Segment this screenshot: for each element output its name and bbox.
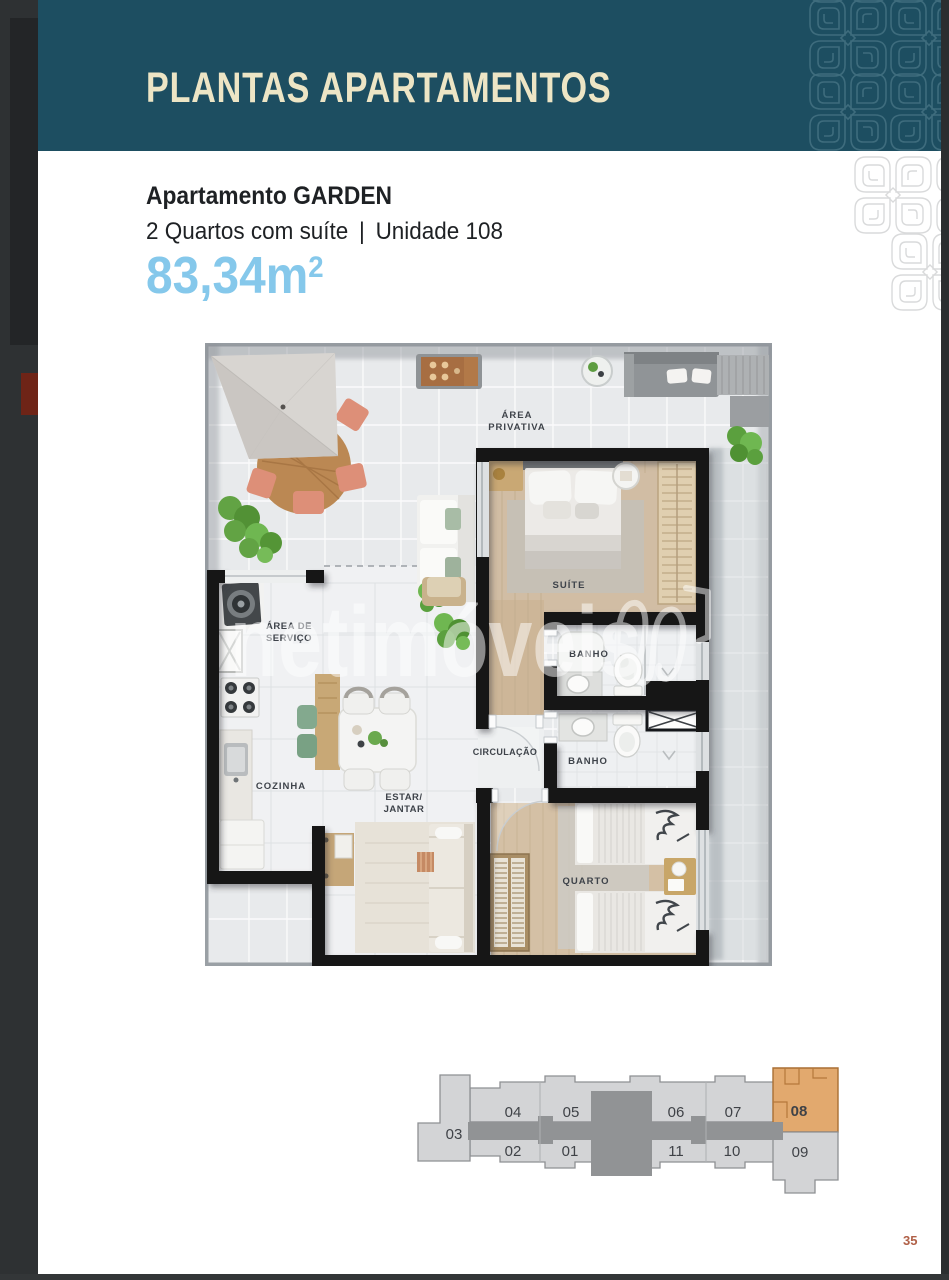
svg-text:07: 07 — [725, 1104, 742, 1121]
svg-text:09: 09 — [792, 1144, 809, 1161]
svg-text:ESTAR/: ESTAR/ — [385, 792, 422, 803]
svg-text:ÁREA: ÁREA — [502, 410, 533, 421]
svg-text:06: 06 — [668, 1104, 685, 1121]
svg-text:QUARTO: QUARTO — [563, 876, 610, 887]
svg-text:BANHO: BANHO — [568, 756, 608, 767]
svg-text:CIRCULAÇÃO: CIRCULAÇÃO — [473, 747, 538, 757]
svg-text:COZINHA: COZINHA — [256, 781, 306, 792]
svg-text:11: 11 — [668, 1143, 684, 1160]
svg-text:01: 01 — [562, 1143, 579, 1160]
svg-text:netimóveis: netimóveis — [230, 586, 642, 698]
svg-text:02: 02 — [505, 1143, 522, 1160]
svg-text:04: 04 — [505, 1104, 522, 1121]
svg-text:05: 05 — [563, 1104, 580, 1121]
svg-text:PRIVATIVA: PRIVATIVA — [488, 422, 546, 433]
svg-text:03: 03 — [446, 1126, 463, 1143]
svg-text:JANTAR: JANTAR — [384, 804, 425, 815]
svg-text:08: 08 — [791, 1103, 808, 1120]
svg-text:10: 10 — [724, 1143, 741, 1160]
